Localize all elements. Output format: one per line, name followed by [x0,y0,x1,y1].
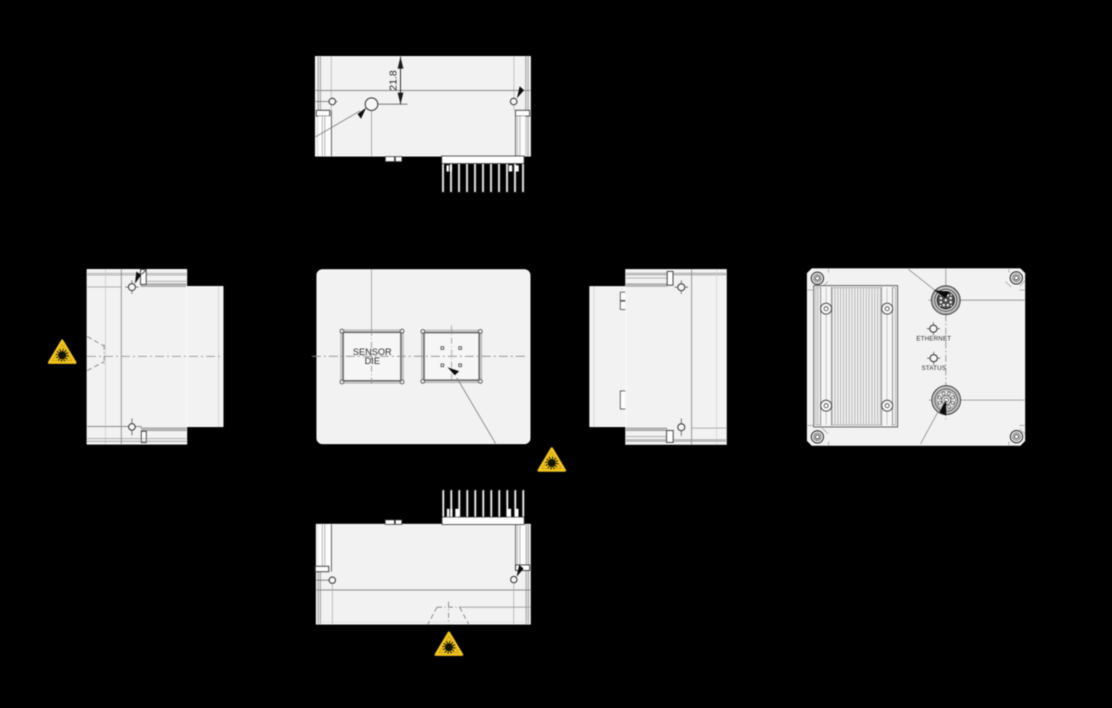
svg-text:STATUS: STATUS [921,365,946,372]
svg-text:21.8: 21.8 [387,70,399,91]
svg-text:ETHERNET: ETHERNET [916,336,951,343]
svg-text:DIE: DIE [365,356,380,366]
